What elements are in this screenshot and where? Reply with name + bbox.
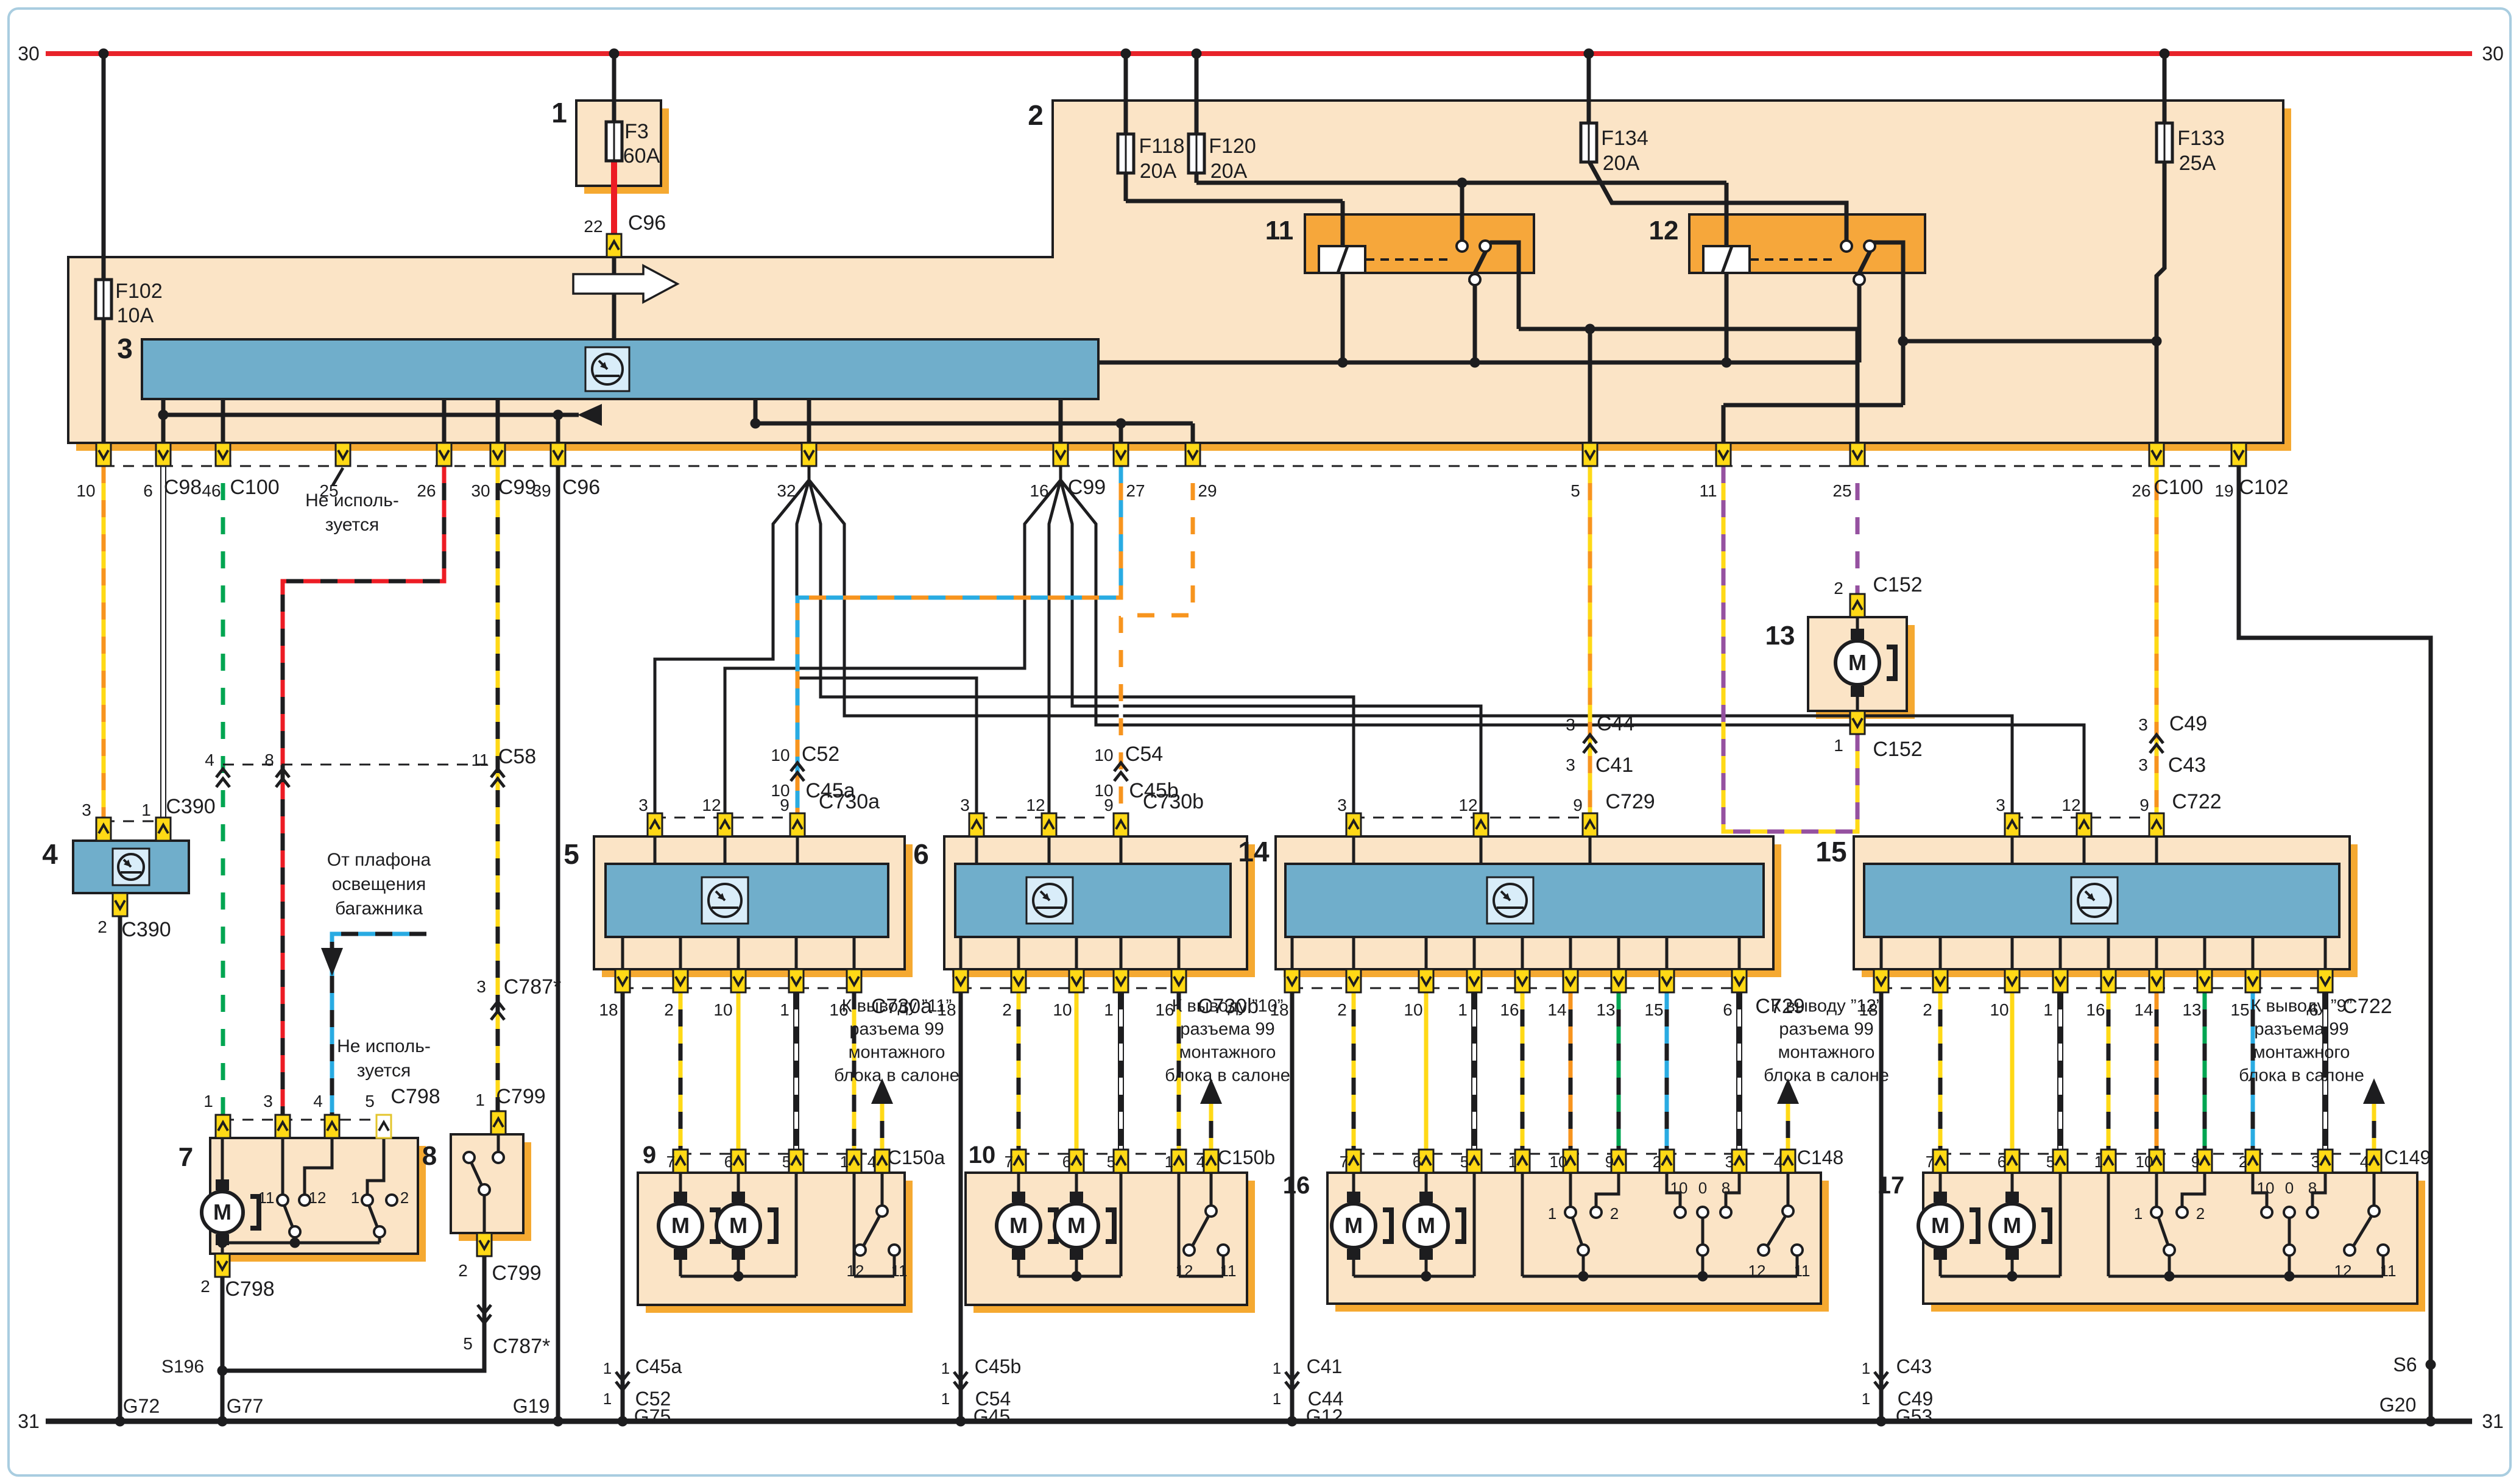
note-unused-2b: зуется — [357, 1062, 411, 1080]
fuse-f118: F118 — [1139, 136, 1185, 157]
fuse-f102: F102 — [115, 281, 163, 302]
wire-label: 1 — [941, 1360, 950, 1376]
wire-label: 3 — [1725, 1154, 1734, 1170]
note-plafond-3: багажника — [335, 900, 423, 918]
comp10-num: 10 — [969, 1143, 996, 1167]
wire-label: 5 — [1570, 482, 1580, 500]
wire-label: 9 — [1605, 1154, 1614, 1170]
wire-label: 4 — [205, 752, 214, 769]
wire-label: 4 — [867, 1154, 876, 1170]
fuse-f134: F134 — [1601, 128, 1648, 149]
wire-label: 3 — [2311, 1154, 2320, 1170]
wire-label: 6 — [1723, 1002, 1733, 1019]
comp8-num: 8 — [422, 1143, 437, 1170]
wire-label: 2 — [400, 1190, 409, 1206]
conn-c149: C149 — [2384, 1148, 2431, 1167]
wire-label: 6 — [1062, 1154, 1071, 1170]
wire-label: 3 — [82, 802, 91, 819]
conn-c43: C43 — [2168, 755, 2206, 776]
wire-label: 3 — [1996, 797, 2005, 814]
wire-label: 9 — [2139, 797, 2149, 814]
wire-label: 6 — [724, 1154, 733, 1170]
conn-c150b: C150b — [1218, 1148, 1275, 1167]
conn-c150a: C150a — [888, 1148, 945, 1167]
wire-label: 1 — [1165, 1154, 1173, 1170]
wire-label: 6 — [143, 482, 153, 500]
wire-label: 2 — [2239, 1154, 2247, 1170]
wire-label: 14 — [2134, 1002, 2153, 1019]
conn-c787-bottom: C787* — [493, 1336, 551, 1357]
wire-label: 10 — [771, 747, 790, 764]
wire-label: 4 — [313, 1093, 323, 1110]
comp17-num: 17 — [1878, 1173, 1905, 1198]
wire-label: 1 — [1862, 1360, 1870, 1376]
wire-label: 1 — [1834, 737, 1843, 754]
wire-label: 7 — [666, 1154, 675, 1170]
wire-label: 1 — [840, 1154, 849, 1170]
wire-label: 11 — [891, 1263, 908, 1279]
wire-label: 7 — [1340, 1154, 1348, 1170]
note-k12-3: монтажного — [1778, 1044, 1875, 1062]
fuse-f120: F120 — [1209, 136, 1256, 157]
comp2-num: 2 — [1028, 101, 1044, 129]
conn-c49: C49 — [2169, 713, 2207, 734]
wire-label: 12 — [1748, 1263, 1766, 1279]
motor-label: M — [1009, 1215, 1028, 1237]
relay11-num: 11 — [1265, 217, 1294, 244]
fuse-f133: F133 — [2177, 128, 2225, 149]
wire-label: 12 — [1026, 797, 1045, 814]
wire-label: 3 — [476, 978, 486, 995]
note-plafond-1: От плафона — [327, 851, 431, 869]
wire-label: 25A — [2179, 153, 2216, 174]
wire-label: 11 — [258, 1190, 275, 1206]
note-k10-4: блока в салоне — [1165, 1067, 1290, 1085]
wire-label: 1 — [1273, 1391, 1281, 1407]
wire-label: 2 — [2196, 1206, 2205, 1221]
wire-label: 10 — [2136, 1154, 2153, 1170]
conn-c152-bottom: C152 — [1873, 739, 1922, 760]
conn-c52: C52 — [802, 744, 839, 765]
comp6-num: 6 — [913, 840, 929, 868]
note-k10-2: разъема 99 — [1180, 1021, 1274, 1039]
wire-label: 3 — [2138, 757, 2148, 774]
conn-c100-left: C100 — [230, 477, 279, 498]
note-unused-1a: Не исполь- — [305, 492, 399, 510]
wire-label: 3 — [1566, 757, 1575, 774]
wire-label: 10 — [713, 1002, 732, 1019]
wire-label: 15 — [1644, 1002, 1663, 1019]
rail30-left: 30 — [18, 44, 40, 63]
conn-c41: C41 — [1595, 755, 1633, 776]
wire-label: 4 — [1196, 1154, 1205, 1170]
wire-label: 20A — [1210, 161, 1248, 182]
wire-label: 5 — [1107, 1154, 1115, 1170]
wire-label: 1 — [1273, 1360, 1281, 1376]
wire-label: 30 — [471, 482, 490, 500]
wire-label: 1 — [2134, 1206, 2143, 1221]
note-k9-4: блока в салоне — [2239, 1067, 2364, 1085]
conn-c730a-top: C730a — [819, 791, 880, 812]
conn-c58: C58 — [498, 746, 536, 767]
wire-label: 5 — [1460, 1154, 1469, 1170]
wire-label: 4 — [1774, 1154, 1782, 1170]
note-k9-1: К выводу ”9” — [2251, 998, 2353, 1016]
wire-label: 26 — [417, 482, 436, 500]
wire-label: 3 — [638, 797, 648, 814]
wire-label: 22 — [584, 218, 602, 235]
wire-label: 2 — [1610, 1206, 1619, 1221]
note-unused-1b: зуется — [325, 516, 379, 534]
comp5-num: 5 — [564, 840, 579, 868]
wire-label: 1 — [1508, 1154, 1517, 1170]
comp13-num: 13 — [1765, 623, 1795, 649]
conn-c799-top: C799 — [496, 1086, 545, 1107]
ground-g75: G75 — [634, 1407, 671, 1426]
fuse-f3-rating: 60A — [623, 146, 660, 166]
motor-label: M — [2003, 1215, 2021, 1237]
motor-label: M — [671, 1215, 690, 1237]
wire-label: 1 — [475, 1092, 485, 1109]
wire-label: 11 — [1699, 482, 1717, 500]
wire-label: 10 — [1094, 747, 1113, 764]
conn-c798-top: C798 — [390, 1086, 440, 1107]
wire-label: 1 — [1548, 1206, 1556, 1221]
conn-c45a-bottom: C45a — [635, 1357, 682, 1376]
wire-label: 8 — [2308, 1180, 2317, 1196]
wire-label: 1 — [1862, 1391, 1870, 1407]
wire-label: 2 — [1337, 1002, 1347, 1019]
wire-label: 11 — [1794, 1263, 1811, 1279]
note-k9-3: монтажного — [2253, 1044, 2350, 1062]
conn-c100-right: C100 — [2153, 477, 2203, 498]
conn-c45b-bottom: C45b — [975, 1357, 1022, 1376]
wire-label: 1 — [2094, 1154, 2103, 1170]
conn-c41-bottom: C41 — [1307, 1357, 1343, 1376]
wire-label: 1 — [603, 1360, 612, 1376]
wire-label: 5 — [2046, 1154, 2055, 1170]
wire-label: 1 — [780, 1002, 790, 1019]
wire-label: 13 — [1596, 1002, 1615, 1019]
wire-label: 12 — [2061, 797, 2080, 814]
wire-label: 39 — [532, 482, 551, 500]
wire-label: 10 — [1990, 1002, 2008, 1019]
ground-g20: G20 — [2379, 1395, 2416, 1415]
wire-label: 2 — [1834, 580, 1843, 597]
wire-label: 26 — [2132, 482, 2150, 500]
note-k9-2: разъема 99 — [2254, 1021, 2348, 1039]
note-k12-2: разъема 99 — [1779, 1021, 1873, 1039]
motor-label: M — [1067, 1215, 1086, 1237]
rail31-right: 31 — [2482, 1412, 2504, 1431]
note-k10-3: монтажного — [1179, 1044, 1276, 1062]
wire-label: 10 — [1550, 1154, 1567, 1170]
conn-c730b-top: C730b — [1143, 791, 1204, 812]
comp1-num: 1 — [551, 99, 567, 127]
conn-c43-bottom: C43 — [1896, 1357, 1932, 1376]
conn-c96-22: C96 — [628, 213, 666, 233]
wire-label: 19 — [2214, 482, 2233, 500]
wire-label: 27 — [1126, 482, 1145, 500]
wire-label: 7 — [1926, 1154, 1934, 1170]
wire-label: 2 — [1923, 1002, 1932, 1019]
ground-g12: G12 — [1306, 1407, 1343, 1426]
conn-c390-top: C390 — [166, 796, 215, 817]
motor-label: M — [729, 1215, 747, 1237]
fuse-f102-rating: 10A — [117, 305, 154, 326]
labels-layer: 303031311F360A22C96F10210A32F11820AF1202… — [0, 0, 2519, 1484]
comp9-num: 9 — [643, 1143, 656, 1167]
comp4-num: 4 — [42, 840, 58, 868]
motor-label: M — [1417, 1215, 1435, 1237]
note-plafond-2: освещения — [332, 875, 426, 894]
wire-label: 10 — [2257, 1180, 2275, 1196]
wire-label: 8 — [1722, 1180, 1730, 1196]
wire-label: 16 — [1500, 1002, 1519, 1019]
wire-label: 1 — [351, 1190, 359, 1206]
rail30-right: 30 — [2482, 44, 2504, 63]
conn-c152-top: C152 — [1873, 574, 1922, 595]
conn-c44: C44 — [1597, 713, 1634, 734]
wire-label: 10 — [1053, 1002, 1072, 1019]
wire-label: 5 — [782, 1154, 791, 1170]
comp16-num: 16 — [1283, 1173, 1310, 1198]
wire-label: 1 — [141, 802, 151, 819]
ground-g45: G45 — [973, 1407, 1010, 1426]
wire-label: 2 — [1002, 1002, 1012, 1019]
note-k11-2: разъема 99 — [849, 1021, 944, 1039]
motor-label: M — [1848, 652, 1867, 674]
wire-label: 13 — [2182, 1002, 2201, 1019]
wire-label: 18 — [599, 1002, 618, 1019]
conn-c798-bottom: C798 — [225, 1279, 274, 1299]
wire-label: 0 — [2285, 1180, 2294, 1196]
wire-label: 20A — [1603, 153, 1640, 174]
note-k11-1: К выводу ”11” — [842, 998, 952, 1016]
wire-label: 3 — [263, 1093, 273, 1110]
wire-label: 3 — [2138, 716, 2148, 733]
ground-g72: G72 — [123, 1396, 160, 1416]
wire-label: 4 — [2360, 1154, 2369, 1170]
wire-label: 16 — [2086, 1002, 2105, 1019]
conn-c99-left: C99 — [498, 477, 536, 498]
ground-g19: G19 — [513, 1396, 549, 1416]
wire-label: 9 — [2191, 1154, 2200, 1170]
wire-label: 3 — [1566, 716, 1575, 733]
splice-s196: S196 — [161, 1358, 204, 1376]
wire-label: 20A — [1140, 161, 1177, 182]
wire-label: 2 — [458, 1262, 468, 1279]
wire-label: 1 — [203, 1093, 213, 1110]
wire-label: 10 — [1404, 1002, 1422, 1019]
wire-label: 6 — [1413, 1154, 1421, 1170]
wire-label: 14 — [1547, 1002, 1566, 1019]
wire-label: 8 — [264, 752, 274, 769]
wire-label: 9 — [1573, 797, 1583, 814]
wire-label: 3 — [1337, 797, 1347, 814]
wire-label: 6 — [1998, 1154, 2006, 1170]
wire-label: 46 — [202, 482, 221, 500]
wire-label: 16 — [1030, 482, 1048, 500]
note-k12-4: блока в салоне — [1764, 1067, 1889, 1085]
conn-c148: C148 — [1797, 1148, 1844, 1167]
wire-label: 7 — [1005, 1154, 1013, 1170]
wire-label: 25 — [1832, 482, 1851, 500]
conn-c722-top: C722 — [2172, 791, 2221, 812]
wire-label: 15 — [2230, 1002, 2249, 1019]
note-k11-3: монтажного — [849, 1044, 945, 1062]
note-k10-1: К выводу ”10” — [1172, 998, 1284, 1016]
rail31-left: 31 — [18, 1412, 40, 1431]
wire-label: 5 — [365, 1093, 375, 1110]
relay12-num: 12 — [1649, 217, 1679, 244]
wire-label: 9 — [1104, 797, 1114, 814]
conn-c99-mid: C99 — [1068, 477, 1106, 498]
note-k12-1: К выводу ”12” — [1771, 998, 1882, 1016]
wire-label: 10 — [1670, 1180, 1688, 1196]
wire-label: 12 — [1176, 1263, 1193, 1279]
comp14-num: 14 — [1238, 838, 1269, 866]
note-k11-4: блока в салоне — [834, 1067, 959, 1085]
comp15-num: 15 — [1815, 838, 1846, 866]
conn-c96: C96 — [562, 477, 600, 498]
comp7-num: 7 — [178, 1144, 193, 1171]
wire-label: 2 — [1653, 1154, 1661, 1170]
wire-label: 12 — [309, 1190, 327, 1206]
motor-label: M — [1344, 1215, 1363, 1237]
wire-label: 2 — [664, 1002, 674, 1019]
wire-label: 10 — [76, 482, 95, 500]
comp3-num: 3 — [117, 334, 133, 362]
ground-g77: G77 — [227, 1396, 263, 1416]
motor-label: M — [1931, 1215, 1949, 1237]
splice-s6: S6 — [2393, 1355, 2417, 1374]
conn-c729-top: C729 — [1605, 791, 1655, 812]
conn-c98: C98 — [164, 477, 202, 498]
wire-label: 12 — [2334, 1263, 2352, 1279]
wire-label: 12 — [847, 1263, 864, 1279]
wire-label: 1 — [941, 1391, 950, 1407]
wire-label: 11 — [2380, 1263, 2397, 1279]
motor-label: M — [213, 1201, 231, 1223]
conn-c54: C54 — [1125, 744, 1163, 765]
wire-label: 2 — [200, 1278, 210, 1295]
conn-c102: C102 — [2239, 477, 2288, 498]
wire-label: 1 — [1104, 1002, 1114, 1019]
conn-c390-bottom: C390 — [121, 919, 171, 940]
wire-label: 12 — [702, 797, 721, 814]
wire-label: 3 — [960, 797, 970, 814]
wire-label: 11 — [471, 752, 489, 769]
wire-label: 5 — [463, 1335, 473, 1352]
wire-label: 2 — [97, 919, 107, 936]
wire-label: 0 — [1698, 1180, 1707, 1196]
wire-label: 1 — [1458, 1002, 1468, 1019]
wire-label: 11 — [1220, 1263, 1237, 1279]
ground-g53: G53 — [1896, 1407, 1932, 1426]
conn-c799-bottom: C799 — [492, 1263, 541, 1284]
wire-label: 1 — [2043, 1002, 2053, 1019]
wire-label: 12 — [1458, 797, 1477, 814]
wire-label: 32 — [777, 482, 796, 500]
wire-label: 1 — [603, 1391, 612, 1407]
wire-label: 9 — [780, 797, 790, 814]
note-unused-2a: Не исполь- — [337, 1037, 431, 1056]
fuse-f3: F3 — [624, 121, 649, 142]
wire-label: 29 — [1198, 482, 1217, 500]
wiring-diagram-page: 303031311F360A22C96F10210A32F11820AF1202… — [0, 0, 2519, 1484]
conn-c787-top: C787* — [504, 977, 562, 997]
